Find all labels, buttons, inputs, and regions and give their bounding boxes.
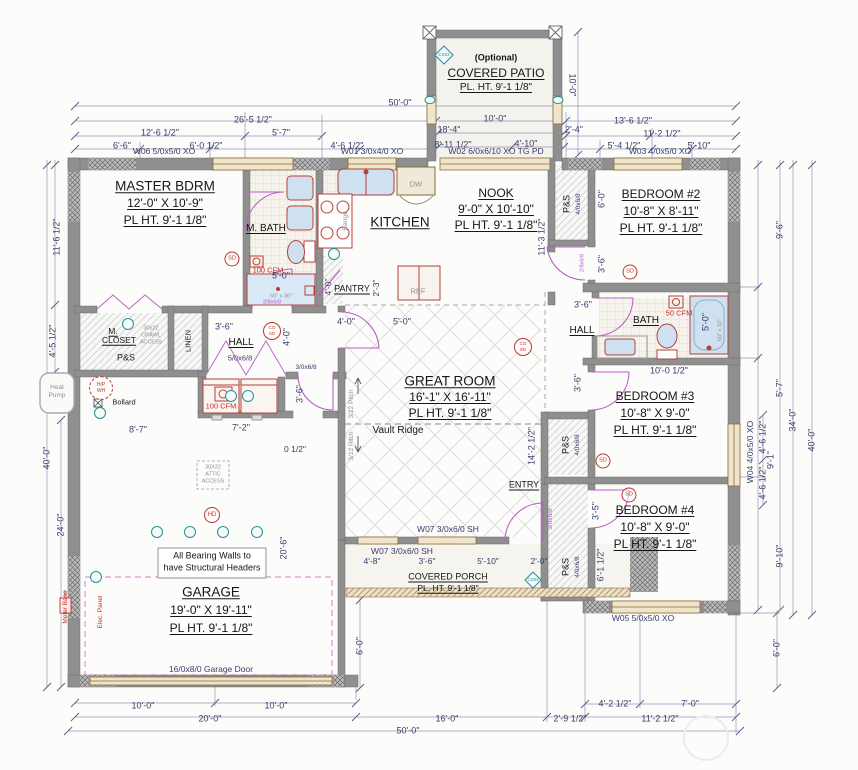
entry-door-size: 3/0x6/8 bbox=[548, 508, 555, 529]
marker-cs03: CS03 bbox=[438, 53, 449, 58]
great-room-size: 16'-1" X 16'-11" bbox=[409, 391, 491, 403]
room-label-master-closet-2: CLOSET bbox=[102, 336, 136, 345]
dim-top-12-6: 12'-6 1/2" bbox=[141, 129, 179, 138]
window-label-w06: W06 5/0x5/0 XO bbox=[133, 147, 195, 156]
nook-size: 9'-0" X 10'-10" bbox=[458, 203, 534, 215]
dim-patio-height: 10'-0" bbox=[568, 74, 577, 97]
dim-bed4-6-1: 6'-1 1/2" bbox=[597, 549, 606, 582]
bed4-ps-door-size: 4/0x6/8 bbox=[575, 556, 582, 577]
dim-right-34: 34'-0" bbox=[789, 409, 798, 432]
crawl-access-3: ACCESS bbox=[140, 340, 163, 346]
dim-bottom-11-2: 11'-2 1/2" bbox=[641, 715, 678, 724]
great-room-plate-height: PL HT. 9'-1 1/8" bbox=[409, 407, 492, 419]
attic-access-3: ACCESS bbox=[202, 479, 225, 485]
dim-top-11-2: 11'-2 1/2" bbox=[643, 130, 680, 139]
dim-bottom-2-9: 2'-9 1/2" bbox=[554, 715, 587, 724]
closet-label-master-ps: P&S bbox=[117, 354, 135, 363]
window-label-w02: W02 6/0x6/10 XO TG PD bbox=[448, 147, 543, 156]
bearing-walls-note-1: All Bearing Walls to bbox=[173, 552, 251, 561]
dim-right-4-6b: 4'-6 1/2" bbox=[759, 467, 768, 500]
co-label: CO bbox=[269, 326, 276, 331]
room-label-hall-right: HALL bbox=[569, 326, 594, 336]
meter-base-label: Meter Base bbox=[63, 590, 70, 623]
roof-pitch-label-up: 3/12 Pitch bbox=[349, 390, 356, 419]
attic-access-1: 30X22 bbox=[205, 465, 221, 471]
vault-ridge-label: Vault Ridge bbox=[373, 426, 424, 436]
tub-size: 60" x 32" bbox=[718, 319, 724, 341]
dim-right-40: 40'-0" bbox=[808, 429, 817, 452]
bed3-ps-door-size: 4/0x6/8 bbox=[575, 434, 582, 455]
dim-bottom-overall: 50'-0" bbox=[397, 727, 420, 736]
room-label-master-bdrm: MASTER BDRM bbox=[115, 179, 215, 193]
sd-label: SD bbox=[269, 332, 275, 337]
dim-great-5-0: 5'-0" bbox=[393, 318, 411, 327]
bath-fan-cfm: 50 CFM bbox=[666, 309, 693, 317]
bedroom-3-size: 10'-8" X 9'-0" bbox=[620, 407, 689, 419]
dim-shower-5-0: 5'-0" bbox=[272, 272, 290, 281]
nook-plate-height: PL HT. 9'-1 1/8" bbox=[455, 219, 538, 231]
window-label-w07-upper: W07 3/0x6/0 SH bbox=[417, 525, 479, 534]
heat-pump-water-heater-marker: H/PWH bbox=[89, 376, 113, 400]
room-label-covered-patio: COVERED PATIO bbox=[448, 67, 545, 79]
room-label-hall-left: HALL bbox=[228, 338, 253, 348]
room-label-garage: GARAGE bbox=[182, 585, 240, 599]
dim-top-26-5: 26'-5 1/2" bbox=[234, 116, 272, 125]
dim-porch-5-10: 5'-10" bbox=[477, 557, 499, 566]
smoke-detector-bed3: SD bbox=[596, 454, 611, 469]
dim-hall-3-6: 3'-6" bbox=[215, 323, 233, 332]
master-plate-height: PL HT. 9'-1 1/8" bbox=[124, 214, 207, 226]
dim-laundry-3-6: 3'-6" bbox=[296, 385, 305, 403]
hpwh-label-1: H/P bbox=[97, 383, 105, 388]
dim-right-9-6: 9'-6" bbox=[776, 221, 785, 239]
dim-bottom-10b: 10'-0" bbox=[265, 702, 288, 711]
dim-porch-3-6: 3'-6" bbox=[419, 557, 436, 566]
room-label-kitchen: KITCHEN bbox=[370, 215, 429, 229]
smoke-detector-bed4: SD bbox=[622, 488, 637, 503]
window-label-w07-lower: W07 3/0x6/0 SH bbox=[371, 547, 433, 556]
closet-label-bed4-ps: P&S bbox=[562, 558, 571, 576]
heat-pump-label-1: Heat bbox=[50, 385, 64, 392]
nook-ps-door-size: 4/0x6/8 bbox=[576, 193, 583, 214]
room-label-entry: ENTRY bbox=[509, 481, 539, 490]
dim-porch-4-8: 4'-8" bbox=[364, 557, 381, 566]
dim-porch-2-0: 2'-0" bbox=[531, 557, 548, 566]
patio-optional-tag: (Optional) bbox=[475, 54, 518, 63]
dim-bed4-3-5: 3'-5" bbox=[592, 502, 601, 520]
room-label-bedroom-2: BEDROOM #2 bbox=[622, 188, 701, 200]
bedroom-4-plate-height: PL HT. 9'-1 1/8" bbox=[614, 538, 697, 550]
dim-right-6-0: 6'-0" bbox=[773, 639, 782, 657]
bedroom-3-plate-height: PL HT. 9'-1 1/8" bbox=[614, 424, 697, 436]
roof-pitch-label-down: 3/12 Pitch bbox=[349, 432, 356, 461]
window-label-w04: W04 4/0x5/0 XO bbox=[746, 421, 755, 483]
dim-bottom-6-0: 6'-0" bbox=[356, 637, 365, 655]
bearing-walls-note-2: have Structural Headers bbox=[163, 564, 260, 573]
dim-bottom-16: 16'-0" bbox=[436, 715, 459, 724]
bollard-label: Bollard bbox=[112, 398, 135, 406]
heat-pump-label-2: Pump bbox=[49, 393, 66, 400]
bedroom-2-size: 10'-8" X 8'-11" bbox=[624, 205, 699, 217]
porch-plate-height: PL. HT. 9'-1 1/8" bbox=[417, 584, 478, 593]
dim-hall-right-3-6b: 3'-6" bbox=[574, 374, 583, 392]
marker-cs02: CS02 bbox=[527, 578, 538, 583]
dim-top-patio-10: 10'-0" bbox=[484, 115, 507, 124]
dim-right-9-1: 9'-1" bbox=[767, 451, 776, 469]
dim-bottom-7-0: 7'-0" bbox=[681, 700, 699, 709]
dim-left-40: 40'-0" bbox=[43, 447, 52, 470]
room-label-nook: NOOK bbox=[478, 187, 513, 199]
dim-bed2-6-0: 6'-0" bbox=[598, 190, 607, 208]
dim-garage-8-7: 8'-7" bbox=[129, 426, 147, 435]
crawl-access-2: CRAWL bbox=[141, 333, 161, 339]
bedroom-2-plate-height: PL HT. 9'-1 1/8" bbox=[620, 222, 703, 234]
crawl-access-1: 30x22 bbox=[144, 326, 159, 332]
dim-garage-7-2: 7'-2" bbox=[232, 424, 250, 433]
floor-plan: 50'-0" 26'-5 1/2" 12'-6 1/2" 5'-7" 6'-6"… bbox=[0, 0, 858, 770]
co-label: CO bbox=[520, 342, 527, 347]
dim-bed2-3-6: 3'-6" bbox=[598, 255, 607, 273]
dim-bottom-4-2: 4'-2 1/2" bbox=[599, 700, 632, 709]
garage-door-label: 16/0x8/0 Garage Door bbox=[169, 665, 253, 674]
dim-top-overall: 50'-0" bbox=[389, 99, 412, 108]
patio-plate-height: PL. HT. 9'-1 1/8" bbox=[460, 83, 532, 93]
garage-size: 19'-0" X 19'-11" bbox=[170, 604, 252, 616]
range-label: Range bbox=[343, 211, 350, 230]
room-label-master-bath: M. BATH bbox=[246, 224, 286, 234]
hd-marker-garage: HD bbox=[204, 507, 220, 523]
dim-left-11-6: 11'-6 1/2" bbox=[53, 218, 62, 255]
room-label-pantry: PANTRY bbox=[334, 285, 370, 294]
room-label-bedroom-4: BEDROOM #4 bbox=[616, 504, 695, 516]
dim-left-4-5: 4'-5 1/2" bbox=[49, 325, 58, 358]
attic-access-2: ATTIC bbox=[205, 472, 220, 478]
dim-left-24: 24'-0" bbox=[57, 514, 66, 537]
dim-right-4-6a: 4'-6 1/2" bbox=[759, 421, 768, 454]
dishwasher-label: DW bbox=[410, 180, 423, 188]
elec-panel-label: Elec. Panel bbox=[98, 596, 105, 629]
closet-label-nook-ps: P&S bbox=[563, 195, 572, 213]
window-label-w05: W05 5/0x5/0 XO bbox=[612, 614, 674, 623]
refrigerator-label: REF bbox=[411, 287, 426, 295]
dim-right-5-7: 5'-7" bbox=[776, 379, 785, 397]
dim-bed3-10-0: 10'-0 1/2" bbox=[650, 367, 688, 376]
window-label-w01: W01 3/0x4/0 XO bbox=[341, 147, 403, 156]
hpwh-label-2: WH bbox=[97, 389, 105, 394]
dim-nook-11-3: 11'-3 1/2" bbox=[538, 218, 547, 255]
dim-hall-4-0: 4'-0" bbox=[283, 328, 292, 346]
dim-top-18-4: 18'-4" bbox=[438, 126, 461, 135]
dim-tub-5-0: 5'-0" bbox=[702, 313, 711, 331]
laundry-door-size: 3/0x6/8 bbox=[295, 365, 316, 372]
dim-right-9-10: 9'-10" bbox=[776, 545, 785, 568]
sd-label: SD bbox=[520, 348, 526, 353]
laundry-fan-cfm: 100 CFM bbox=[206, 402, 237, 410]
co-smoke-detector-great-room: COSD bbox=[514, 338, 532, 356]
bedroom-4-size: 10'-8" X 9'-0" bbox=[620, 521, 689, 533]
room-label-linen: LINEN bbox=[184, 330, 192, 352]
co-smoke-detector-hall: COSD bbox=[263, 322, 281, 340]
dim-top-2-4: 2'-4" bbox=[565, 126, 583, 135]
dim-bottom-10a: 10'-0" bbox=[132, 702, 155, 711]
smoke-detector-master: SD bbox=[225, 252, 240, 267]
room-label-covered-porch: COVERED PORCH bbox=[408, 573, 488, 582]
dim-pantry-4-0: 4'-0" bbox=[324, 279, 333, 296]
dim-top-5-7: 5'-7" bbox=[272, 129, 290, 138]
hall-door-size: 5/0x6/8 bbox=[228, 354, 253, 362]
room-label-bedroom-3: BEDROOM #3 bbox=[616, 390, 695, 402]
master-door-size: 2/8x6/8 bbox=[263, 300, 281, 306]
dim-garage-20-6: 20'-6" bbox=[280, 537, 289, 560]
garage-plate-height: PL HT. 9'-1 1/8" bbox=[170, 622, 253, 634]
master-size: 12'-0" X 10'-9" bbox=[127, 197, 203, 209]
dim-bottom-20: 20'-0" bbox=[199, 715, 222, 724]
smoke-detector-bed2: SD bbox=[623, 265, 638, 280]
dim-great-14-2: 14'-2 1/2" bbox=[528, 427, 537, 465]
dim-top-13-6: 13'-6 1/2" bbox=[614, 117, 652, 126]
room-label-great-room: GREAT ROOM bbox=[404, 374, 495, 388]
room-label-bath: BATH bbox=[633, 316, 659, 326]
dim-great-4-0: 4'-0" bbox=[337, 318, 355, 327]
dim-hall-right-3-6: 3'-6" bbox=[574, 301, 592, 310]
window-label-w03: W03 4/0x5/0 XO bbox=[629, 147, 691, 156]
closet-label-bed3-ps: P&S bbox=[562, 436, 571, 454]
dim-garage-0-5: 0 1/2" bbox=[284, 445, 306, 454]
dim-ref-2-3: 2'-3" bbox=[372, 280, 381, 297]
bedroom-2-door-size: 2/8x6/8 bbox=[580, 254, 586, 272]
dim-top-6-6: 6'-6" bbox=[113, 142, 131, 151]
